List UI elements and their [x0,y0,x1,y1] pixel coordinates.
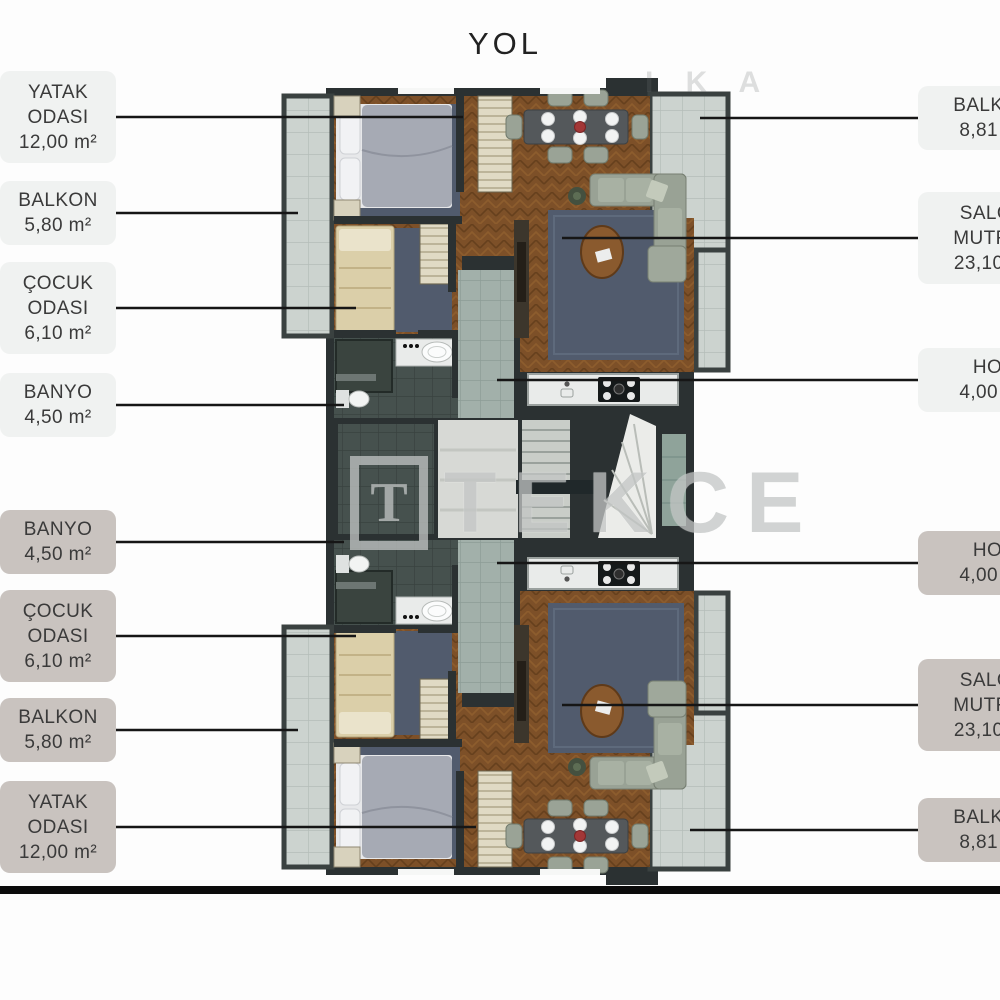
room-area: 5,80 m² [24,213,91,238]
floorplan-page: I K A YOL T TEKCE YATAKODASI12,00 m²BALK… [0,0,1000,1000]
room-label: YATAKODASI12,00 m² [0,71,116,163]
room-label: HOL4,00 m² [918,531,1000,595]
road-label: YOL [455,26,555,62]
room-label: BALKON8,81 m² [918,798,1000,862]
room-name: BANYO [24,380,93,405]
room-name: SALON [960,201,1000,226]
room-label: BALKON5,80 m² [0,181,116,245]
room-name: YATAK [28,790,88,815]
room-area: 12,00 m² [19,130,97,155]
room-name: HOL [973,355,1000,380]
room-name: ODASI [27,815,88,840]
room-area: 12,00 m² [19,840,97,865]
stairwell [326,414,694,540]
room-name: ÇOCUK [23,599,94,624]
room-area: 6,10 m² [24,649,91,674]
room-area: 6,10 m² [24,321,91,346]
room-name: YATAK [28,80,88,105]
lower-apartment [284,535,728,885]
room-name: SALON [960,668,1000,693]
stairs [522,420,570,538]
room-label: BALKON5,80 m² [0,698,116,762]
room-name: ODASI [27,105,88,130]
room-name: MUTFAK [953,226,1000,251]
floor-plan: I K A [0,0,1000,1000]
upper-apartment [284,78,728,428]
room-area: 4,00 m² [959,563,1000,588]
room-name: BALKON [953,93,1000,118]
room-area: 5,80 m² [24,730,91,755]
room-label: ÇOCUKODASI6,10 m² [0,590,116,682]
room-label: YATAKODASI12,00 m² [0,781,116,873]
room-name: BANYO [24,517,93,542]
room-name: ODASI [27,624,88,649]
room-label: BALKON8,81 m² [918,86,1000,150]
room-name: BALKON [18,188,98,213]
room-area: 4,50 m² [24,542,91,567]
room-name: BALKON [18,705,98,730]
room-label: BANYO4,50 m² [0,373,116,437]
room-area: 8,81 m² [959,830,1000,855]
room-name: BALKON [953,805,1000,830]
room-name: ÇOCUK [23,271,94,296]
room-label: HOL4,00 m² [918,348,1000,412]
room-area: 23,10 m² [954,251,1000,276]
room-name: ODASI [27,296,88,321]
site-boundary-line [0,886,1000,894]
room-label: SALONMUTFAK23,10 m² [918,192,1000,284]
room-area: 8,81 m² [959,118,1000,143]
room-label: BANYO4,50 m² [0,510,116,574]
room-label: ÇOCUKODASI6,10 m² [0,262,116,354]
room-area: 23,10 m² [954,718,1000,743]
room-area: 4,00 m² [959,380,1000,405]
room-name: HOL [973,538,1000,563]
room-label: SALONMUTFAK23,10 m² [918,659,1000,751]
room-name: MUTFAK [953,693,1000,718]
room-area: 4,50 m² [24,405,91,430]
faint-watermark-fragment: I K A [645,66,772,99]
